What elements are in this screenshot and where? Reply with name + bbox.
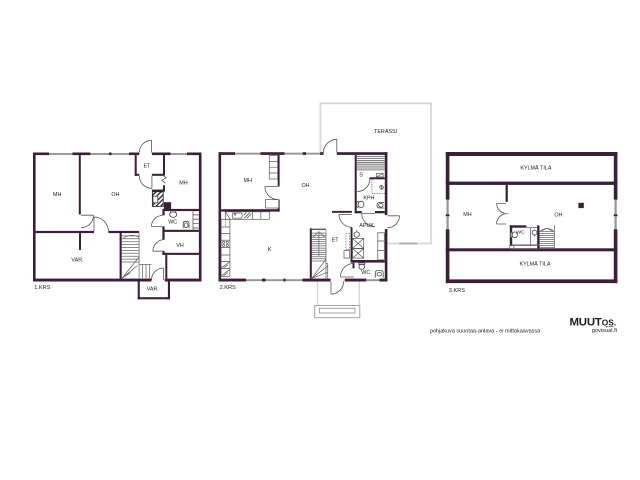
svg-text:OH: OH bbox=[554, 213, 562, 219]
svg-text:S: S bbox=[359, 173, 363, 179]
svg-text:MH: MH bbox=[179, 181, 187, 187]
svg-text:KPH: KPH bbox=[363, 195, 374, 201]
svg-text:WC: WC bbox=[168, 219, 177, 225]
svg-text:ET: ET bbox=[332, 237, 340, 243]
svg-text:pohjakuva suuntaa-antava - ei: pohjakuva suuntaa-antava - ei mittakaava… bbox=[430, 329, 541, 335]
svg-text:VAR.: VAR. bbox=[71, 258, 83, 264]
svg-text:MH: MH bbox=[463, 212, 471, 218]
svg-text:OH: OH bbox=[111, 192, 119, 198]
svg-text:WC: WC bbox=[361, 270, 370, 276]
svg-text:KYLMÄ TILA: KYLMÄ TILA bbox=[519, 260, 550, 267]
svg-text:TERASSI: TERASSI bbox=[374, 129, 397, 135]
svg-text:3.KRS: 3.KRS bbox=[449, 288, 465, 294]
svg-text:APUK: APUK bbox=[359, 223, 374, 229]
svg-text:WC: WC bbox=[516, 229, 525, 235]
svg-text:1.KRS: 1.KRS bbox=[34, 285, 50, 291]
svg-text:ET: ET bbox=[144, 163, 152, 169]
svg-text:govisual.fi: govisual.fi bbox=[592, 328, 617, 334]
svg-text:2.KRS: 2.KRS bbox=[220, 285, 236, 291]
svg-text:VAR.: VAR. bbox=[147, 286, 159, 292]
svg-text:VH: VH bbox=[176, 243, 184, 249]
svg-text:OH: OH bbox=[301, 183, 309, 189]
svg-text:K: K bbox=[268, 247, 272, 253]
svg-text:MH: MH bbox=[53, 192, 61, 198]
svg-text:KYLMÄ TILA: KYLMÄ TILA bbox=[520, 165, 551, 172]
svg-text:MUUT: MUUT bbox=[570, 317, 602, 329]
svg-text:MH: MH bbox=[244, 178, 252, 184]
